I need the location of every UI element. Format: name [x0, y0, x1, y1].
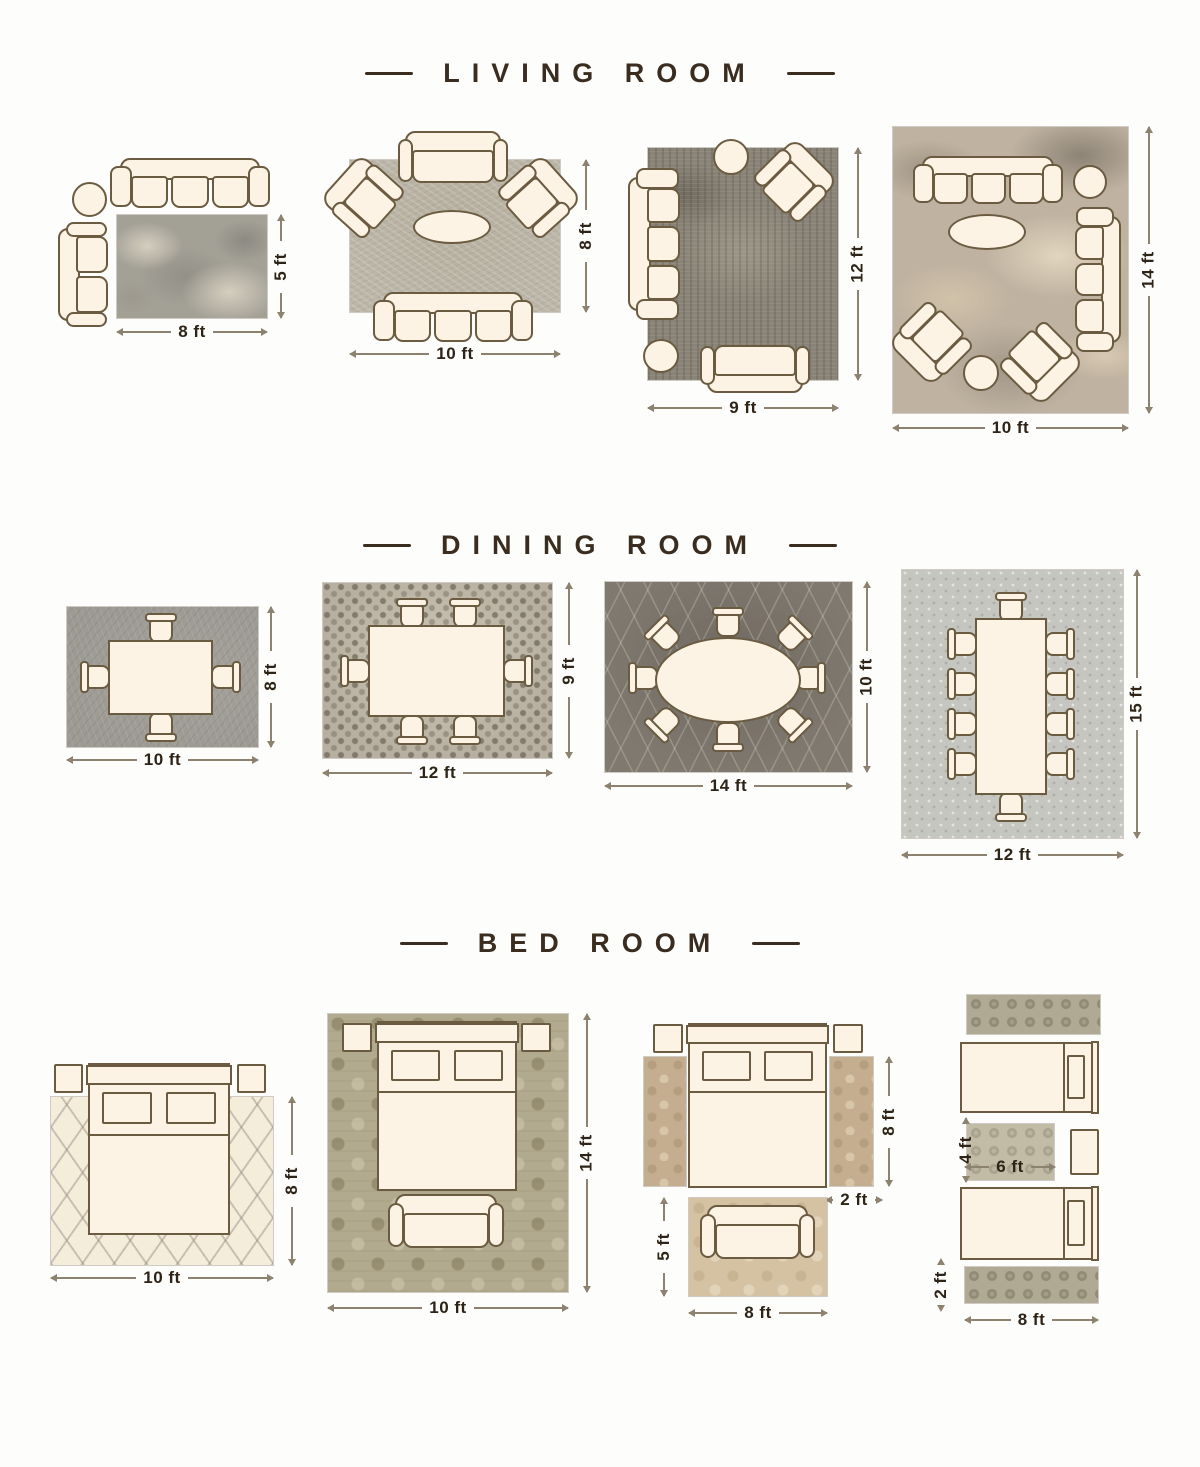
living-room-title: LIVING ROOM [443, 58, 757, 89]
sofa-cushion [971, 173, 1006, 204]
dim-height-label: 9 ft [559, 657, 579, 685]
sofa-arm [795, 346, 810, 385]
dim-width: 8 ft [117, 322, 267, 342]
header-dash-left [365, 72, 413, 75]
dim-runner-length-label: 8 ft [879, 1108, 899, 1136]
bed-divider [1063, 1044, 1065, 1111]
dining-chair [947, 628, 977, 660]
sofa-arm [636, 168, 679, 189]
dim-width-label: 10 ft [144, 750, 181, 770]
dim-runner-width-label: 8 ft [1018, 1310, 1046, 1330]
nightstand [342, 1023, 372, 1052]
sofa-cushion [715, 1224, 800, 1259]
side-table-round [963, 355, 999, 391]
sofa-three-seat [628, 168, 680, 320]
sofa-cushion [403, 1213, 489, 1248]
sofa-arm [1076, 207, 1114, 227]
sofa-arm [66, 222, 107, 237]
headboard [686, 1025, 829, 1044]
dim-runner-height: 2 ft [928, 1259, 954, 1311]
pillow [166, 1092, 216, 1124]
nightstand [54, 1064, 83, 1093]
dim-height-label: 5 ft [271, 253, 291, 281]
headboard [1091, 1186, 1099, 1262]
dining-chair [211, 661, 241, 693]
sofa-arm [488, 1203, 504, 1247]
sofa-arm [373, 300, 395, 341]
dim-width: 10 ft [51, 1268, 273, 1288]
sofa-cushion [1009, 173, 1044, 204]
dim-runner-width: 8 ft [965, 1310, 1098, 1330]
dim-height: 8 ft [258, 607, 284, 747]
dining-chair [1045, 748, 1075, 780]
loveseat [398, 131, 508, 183]
dining-chair [712, 607, 744, 637]
headboard [1091, 1041, 1099, 1115]
twin-bed [960, 1042, 1099, 1113]
dim-height-label: 15 ft [1127, 685, 1147, 722]
dim-runner-width: 2 ft [826, 1190, 882, 1210]
dim-width-label: 9 ft [729, 398, 757, 418]
dim-width-label: 10 ft [992, 418, 1029, 438]
dim-height-label: 12 ft [848, 245, 868, 282]
loveseat-two-seat [58, 222, 108, 327]
sofa-arm [799, 1214, 815, 1258]
dining-chair [947, 708, 977, 740]
dim-runner-length: 8 ft [876, 1057, 902, 1186]
dining-chair [712, 722, 744, 752]
dim-height: 14 ft [574, 1014, 600, 1292]
blanket [688, 1091, 827, 1188]
dim-height: 15 ft [1124, 570, 1150, 838]
header-dash-left [363, 544, 411, 547]
header-dash-right [752, 942, 800, 945]
dining-table [368, 625, 505, 717]
pillow [102, 1092, 152, 1124]
runner-rug [644, 1057, 686, 1186]
sofa-three-seat [913, 156, 1063, 204]
dim-runner-width-label: 2 ft [840, 1190, 868, 1210]
sofa-cushion [647, 188, 680, 224]
dim-height-label: 14 ft [577, 1134, 597, 1171]
dim-width: 12 ft [902, 845, 1123, 865]
dining-chair [449, 715, 481, 745]
dining-chair [1045, 668, 1075, 700]
dim-width: 12 ft [323, 763, 552, 783]
dim-mid-rug-width-label: 6 ft [996, 1157, 1024, 1177]
dim-height-label: 8 ft [282, 1167, 302, 1195]
dim-mid-rug-width: 6 ft [965, 1157, 1055, 1177]
dining-chair [396, 715, 428, 745]
dim-height: 12 ft [845, 148, 871, 380]
sofa-cushion [475, 310, 512, 342]
dim-rug-height-label: 5 ft [654, 1233, 674, 1261]
dim-width-label: 12 ft [419, 763, 456, 783]
dining-chair [396, 598, 428, 628]
blanket [88, 1134, 230, 1235]
side-table-round [72, 182, 107, 217]
bench [388, 1194, 504, 1248]
nightstand [833, 1024, 863, 1053]
dining-chair [947, 668, 977, 700]
sofa-cushion [1075, 263, 1104, 297]
dim-rug-width: 8 ft [689, 1303, 827, 1323]
dim-height: 8 ft [279, 1097, 305, 1265]
bed-room-title: BED ROOM [478, 928, 723, 959]
dim-width-label: 12 ft [994, 845, 1031, 865]
bed [688, 1023, 827, 1188]
dining-table [108, 640, 213, 715]
sofa-cushion [434, 310, 471, 342]
runner-rug [965, 1267, 1098, 1303]
header-dash-left [400, 942, 448, 945]
dim-width: 10 ft [328, 1298, 568, 1318]
dining-chair [628, 662, 658, 694]
dining-room-title: DINING ROOM [441, 530, 759, 561]
sofa-arm [1076, 332, 1114, 352]
sofa-arm [511, 300, 533, 341]
dim-width: 9 ft [648, 398, 838, 418]
dining-room-header: DINING ROOM [0, 530, 1200, 561]
pillow [1067, 1055, 1085, 1099]
dim-width-label: 8 ft [178, 322, 206, 342]
dim-width-label: 10 ft [143, 1268, 180, 1288]
bed-divider [1063, 1189, 1065, 1258]
dim-height-label: 14 ft [1139, 251, 1159, 288]
sofa-cushion [171, 176, 208, 208]
sofa-arm [398, 139, 413, 182]
sofa-arm [700, 346, 715, 385]
dim-width: 10 ft [893, 418, 1128, 438]
dim-height-label: 10 ft [857, 658, 877, 695]
dim-height: 9 ft [556, 583, 582, 758]
rug-size-guide: LIVING ROOM 5 ft 8 ft [0, 0, 1200, 1467]
sofa-cushion [647, 265, 680, 301]
bed [377, 1021, 517, 1191]
rug-8x5 [117, 215, 267, 318]
dim-width: 14 ft [605, 776, 852, 796]
dim-width-label: 10 ft [436, 344, 473, 364]
pillow [454, 1050, 503, 1082]
header-dash-right [789, 544, 837, 547]
sofa-arm [913, 164, 934, 203]
coffee-table-oval [948, 214, 1026, 250]
runner-rug [830, 1057, 873, 1186]
bed-room-header: BED ROOM [0, 928, 1200, 959]
dim-height-label: 8 ft [576, 222, 596, 250]
side-table-round [643, 339, 679, 373]
sofa-arm [1042, 164, 1063, 203]
side-table-round [713, 139, 749, 175]
sofa-cushion [212, 176, 249, 208]
sofa-cushion [647, 226, 680, 262]
header-dash-right [787, 72, 835, 75]
living-room-header: LIVING ROOM [0, 58, 1200, 89]
dim-height: 5 ft [268, 215, 294, 318]
dim-width: 10 ft [67, 750, 258, 770]
sofa-three-seat [110, 158, 270, 208]
headboard [375, 1023, 519, 1043]
sofa-arm [110, 166, 132, 207]
sofa-arm [700, 1214, 716, 1258]
sofa-three-seat [373, 292, 533, 342]
dim-runner-height-label: 2 ft [931, 1271, 951, 1299]
dining-table [975, 618, 1047, 795]
dim-width-label: 14 ft [710, 776, 747, 796]
twin-bed [960, 1187, 1099, 1260]
sofa-cushion [76, 236, 108, 273]
dining-chair [340, 655, 370, 687]
sofa-arm [493, 139, 508, 182]
sofa-three-seat [1075, 207, 1121, 352]
sofa-cushion [933, 173, 968, 204]
dining-table-oval [655, 637, 801, 723]
dining-chair [947, 748, 977, 780]
loveseat [700, 345, 810, 393]
runner-rug [967, 995, 1100, 1034]
sofa-cushion [131, 176, 168, 208]
sofa-cushion [412, 150, 493, 183]
sofa-arm [636, 299, 679, 320]
dining-chair [80, 661, 110, 693]
sofa-cushion [394, 310, 431, 342]
dim-height: 8 ft [573, 160, 599, 312]
dining-chair [145, 712, 177, 742]
dim-rug-height: 5 ft [651, 1198, 677, 1296]
dim-height: 10 ft [854, 582, 880, 772]
blanket [377, 1091, 517, 1191]
pillow [1067, 1200, 1085, 1246]
bench [700, 1205, 815, 1259]
sofa-cushion [1075, 226, 1104, 260]
nightstand [521, 1023, 551, 1052]
dining-chair [995, 792, 1027, 822]
nightstand [653, 1024, 683, 1053]
pillow [764, 1051, 813, 1082]
dining-chair [145, 613, 177, 643]
dining-chair [503, 655, 533, 687]
dining-chair [449, 598, 481, 628]
nightstand [237, 1064, 266, 1093]
pillow [391, 1050, 440, 1082]
sofa-cushion [1075, 299, 1104, 333]
nightstand [1070, 1129, 1099, 1175]
coffee-table-oval [413, 210, 491, 244]
pillow [702, 1051, 751, 1082]
dim-width-label: 10 ft [429, 1298, 466, 1318]
sofa-arm [388, 1203, 404, 1247]
headboard [86, 1065, 232, 1085]
bed [88, 1063, 230, 1235]
dim-width: 10 ft [350, 344, 560, 364]
dim-rug-width-label: 8 ft [744, 1303, 772, 1323]
side-table-round [1073, 165, 1107, 199]
dim-height-label: 8 ft [261, 663, 281, 691]
dining-chair [1045, 628, 1075, 660]
dim-height: 14 ft [1136, 127, 1162, 413]
dining-chair [1045, 708, 1075, 740]
sofa-arm [66, 312, 107, 327]
sofa-arm [248, 166, 270, 207]
sofa-cushion [76, 276, 108, 313]
sofa-cushion [714, 345, 795, 376]
